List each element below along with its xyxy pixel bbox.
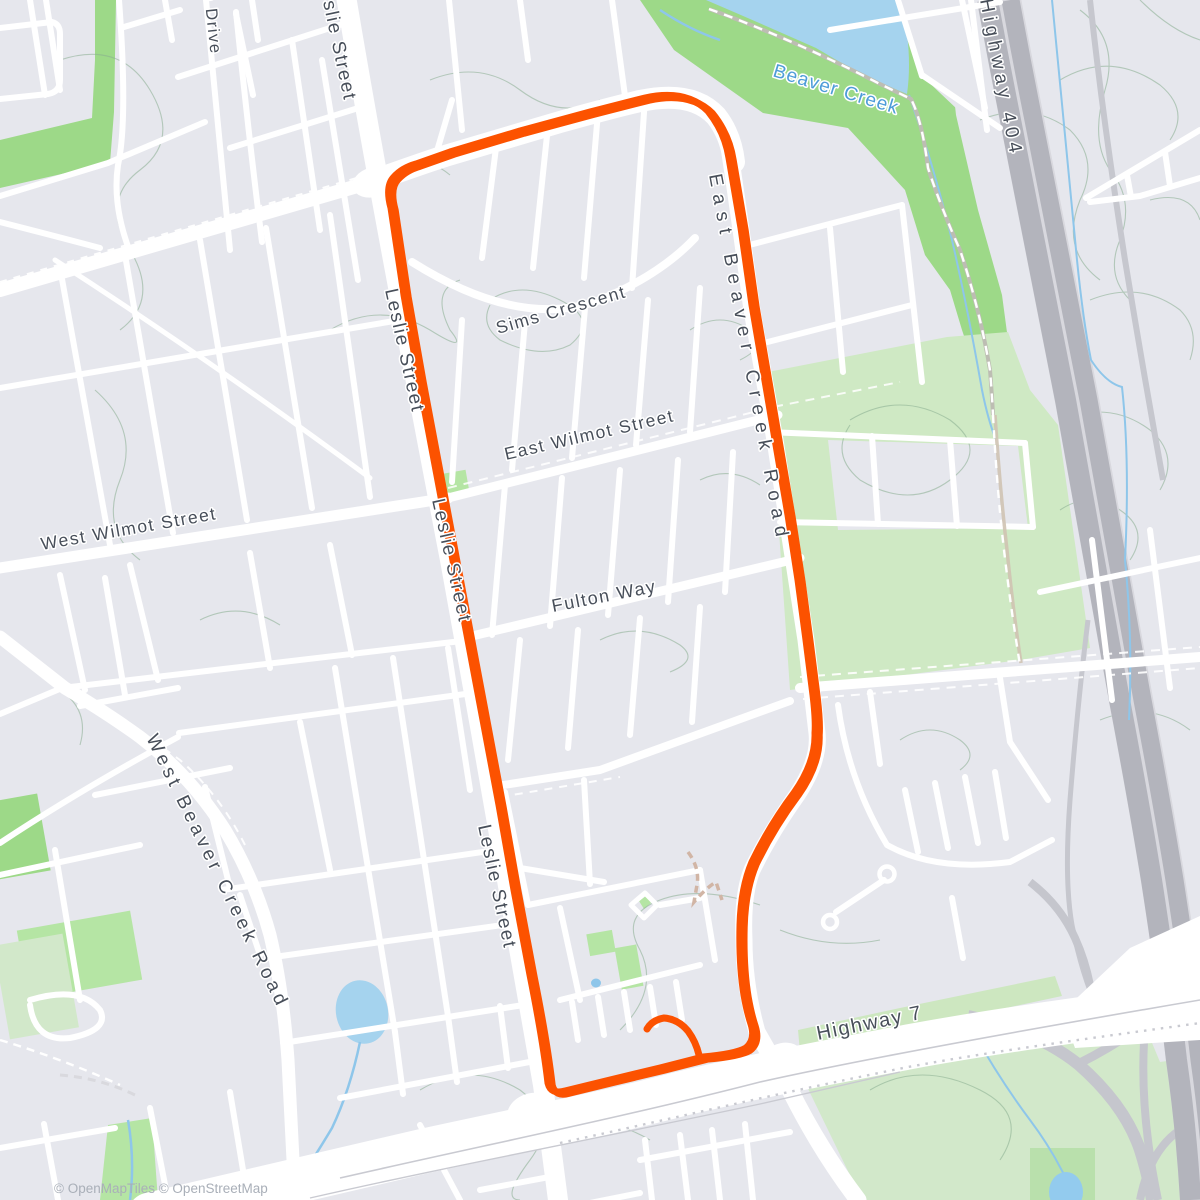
svg-text:© OpenMapTiles © OpenStreetMap: © OpenMapTiles © OpenStreetMap: [54, 1181, 268, 1196]
